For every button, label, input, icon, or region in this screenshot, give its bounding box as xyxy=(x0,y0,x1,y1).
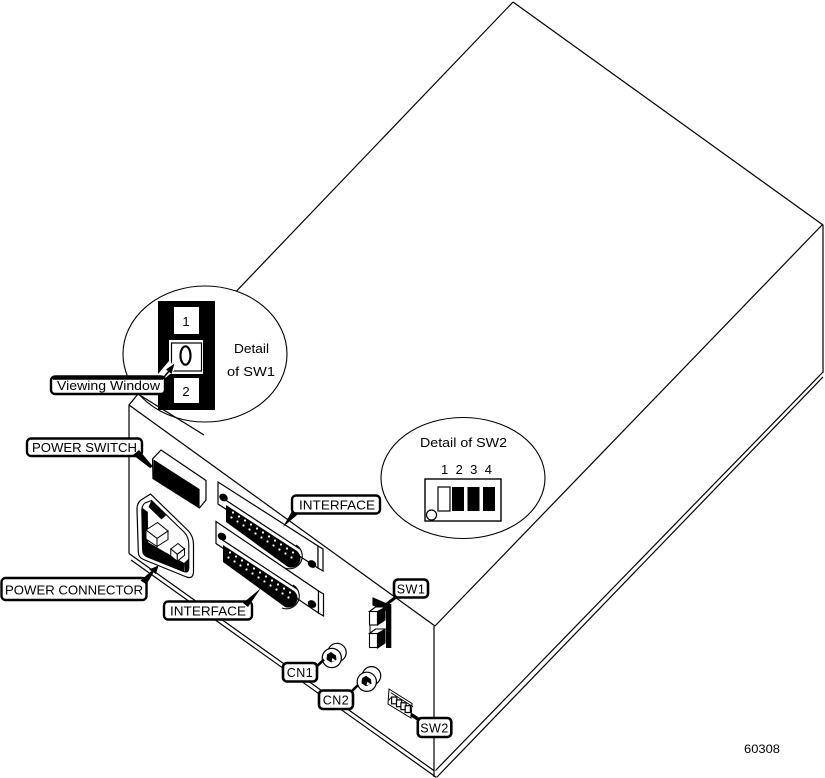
svg-text:SW1: SW1 xyxy=(397,583,426,597)
svg-text:SW2: SW2 xyxy=(420,722,449,736)
svg-text:2: 2 xyxy=(182,384,189,399)
svg-text:60308: 60308 xyxy=(744,742,780,756)
svg-text:1: 1 xyxy=(182,314,189,329)
svg-text:Viewing Window: Viewing Window xyxy=(57,379,161,393)
svg-text:INTERFACE: INTERFACE xyxy=(299,499,375,513)
svg-text:of SW1: of SW1 xyxy=(227,364,275,379)
svg-text:CN2: CN2 xyxy=(323,694,350,708)
svg-text:CN1: CN1 xyxy=(287,666,314,680)
svg-text:Detail: Detail xyxy=(234,341,269,356)
svg-text:POWER SWITCH: POWER SWITCH xyxy=(32,441,137,455)
svg-text:POWER CONNECTOR: POWER CONNECTOR xyxy=(5,584,143,598)
svg-text:INTERFACE: INTERFACE xyxy=(170,605,246,619)
svg-text:Detail of SW2: Detail of SW2 xyxy=(420,435,507,450)
